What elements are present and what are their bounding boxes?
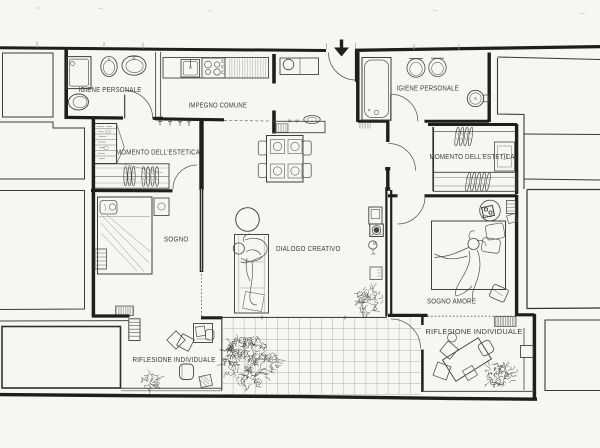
- svg-text:IGIENE PERSONALE: IGIENE PERSONALE: [79, 85, 142, 94]
- svg-text:SOGNO AMORE: SOGNO AMORE: [427, 296, 476, 305]
- svg-text:IMPEGNO COMUNE: IMPEGNO COMUNE: [189, 101, 248, 110]
- svg-text:MOMENTO DELL'ESTETICA.: MOMENTO DELL'ESTETICA.: [430, 152, 517, 161]
- svg-text:RIFLESIONE INDIVIDUALE: RIFLESIONE INDIVIDUALE: [133, 356, 216, 364]
- svg-text:IGIENE PERSONALE: IGIENE PERSONALE: [397, 84, 460, 93]
- svg-text:MOMENTO DELL'ESTETICA: MOMENTO DELL'ESTETICA: [116, 148, 200, 157]
- svg-text:DIALOGO CREATIVO: DIALOGO CREATIVO: [276, 244, 341, 253]
- svg-text:RIFLESIONE INDIVIDUALE: RIFLESIONE INDIVIDUALE: [426, 327, 523, 336]
- svg-text:SOGNO: SOGNO: [164, 235, 189, 244]
